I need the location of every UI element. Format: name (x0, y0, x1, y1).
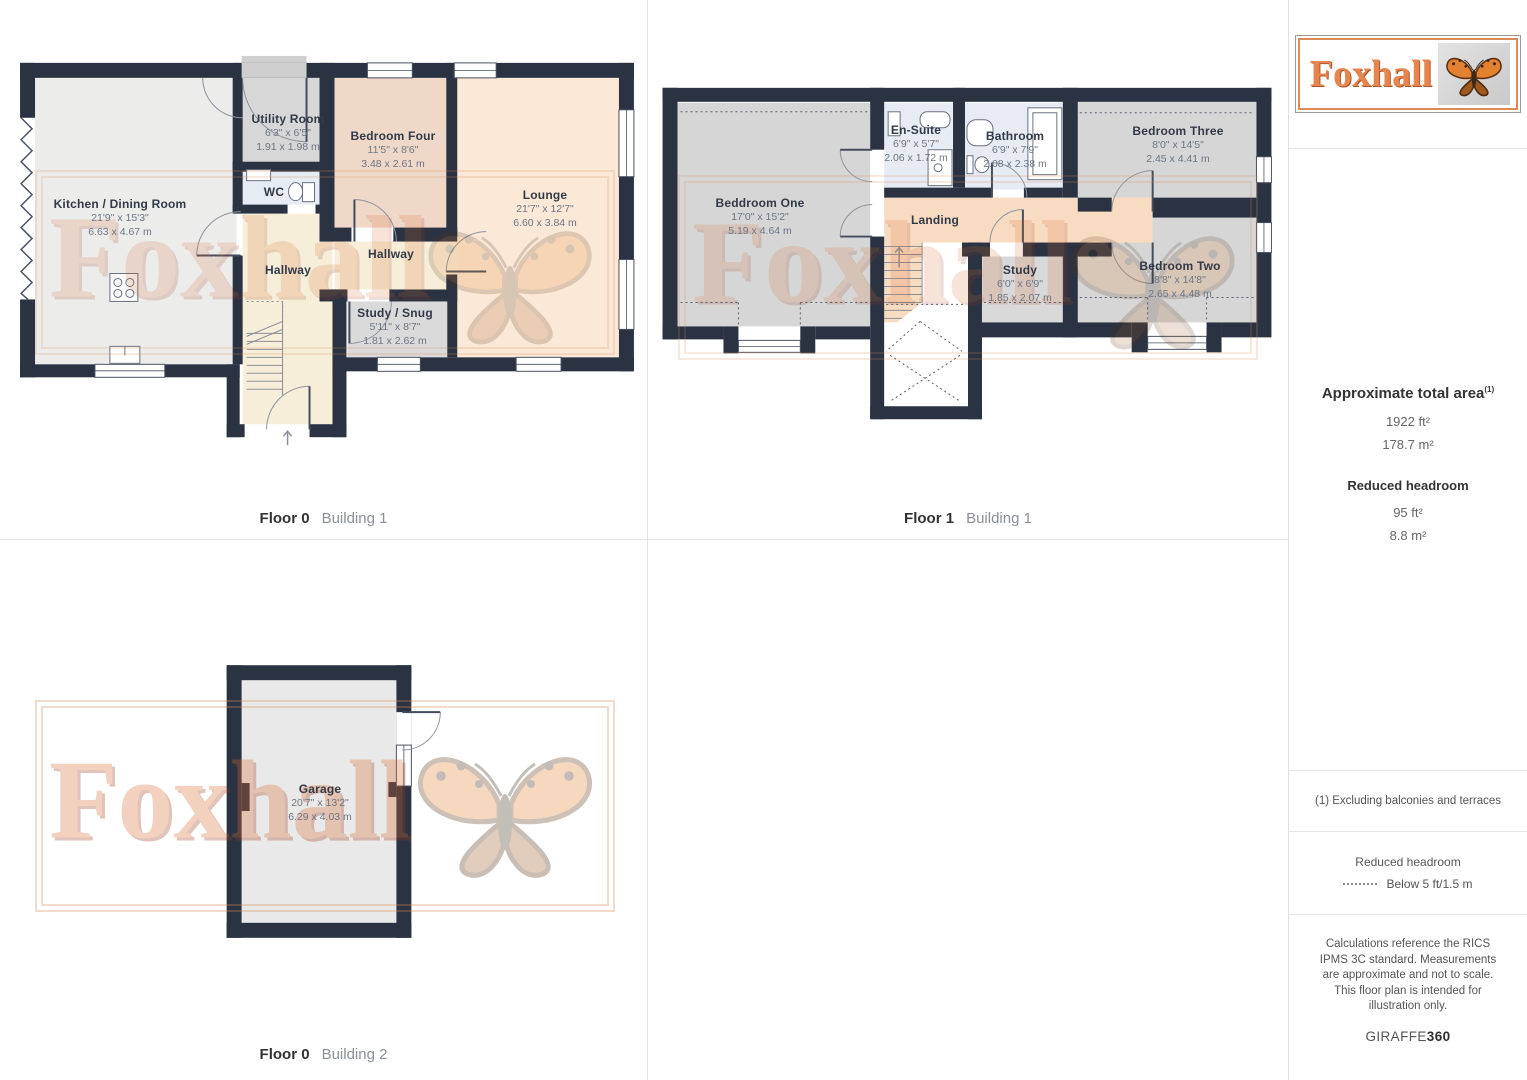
logo-text: Foxhall (1310, 52, 1432, 96)
floorplan-page: Foxhall Kitchen / Dining Room 21'9" x 15… (0, 0, 1527, 1080)
giraffe360-brand: GIRAFFE360 (1365, 1029, 1450, 1044)
reduced-headroom-m: 8.8 m² (1289, 528, 1527, 543)
disclaimer-text: Calculations reference the RICS IPMS 3C … (1314, 937, 1502, 1015)
plan-caption-f0b1: Floor 0 Building 1 (0, 510, 647, 527)
footnote-section: (1) Excluding balconies and terraces (1289, 771, 1527, 832)
legend-section: Reduced headroom Below 5 ft/1.5 m (1289, 832, 1527, 915)
butterfly-icon (1442, 48, 1506, 100)
legend-value: Below 5 ft/1.5 m (1386, 877, 1472, 891)
room-label-hallway-1: Hallway (228, 263, 348, 277)
plan-panel-floor0-building2: Foxhall Garage 20'7" x 13'2" 6.29 x 4.03… (0, 540, 648, 1080)
room-label-wc: WC (234, 185, 314, 199)
foxhall-logo: Foxhall (1295, 35, 1521, 113)
total-area-label: Approximate total area(1) (1289, 385, 1527, 402)
logo-section: Foxhall (1289, 0, 1527, 149)
plan-panel-floor1-building1: Foxhall Beddroom One 17'0" x 15'2" 5.19 … (648, 0, 1288, 540)
plan-caption-f0b2: Floor 0 Building 2 (0, 1046, 647, 1063)
room-label-study-snug: Study / Snug 5'11" x 8'7" 1.81 x 2.62 m (315, 306, 475, 347)
room-label-bedroom-one: Beddroom One 17'0" x 15'2" 5.19 x 4.64 m (680, 196, 840, 237)
room-label-garage: Garage 20'7" x 13'2" 6.29 x 4.03 m (240, 782, 400, 823)
dashed-line-icon (1343, 883, 1377, 885)
room-label-bathroom: Bathroom 6'9" x 7'9" 2.08 x 2.38 m (935, 129, 1095, 170)
reduced-headroom-label: Reduced headroom (1289, 478, 1527, 493)
area-summary-section: Approximate total area(1) 1922 ft² 178.7… (1289, 149, 1527, 771)
total-area-ft: 1922 ft² (1289, 414, 1527, 429)
room-label-study: Study 6'0" x 6'9" 1.85 x 2.07 m (940, 263, 1100, 304)
empty-panel (648, 540, 1288, 1080)
zigzag-wall-symbol (21, 118, 32, 300)
room-label-hallway-2: Hallway (331, 247, 451, 261)
footnote-text: (1) Excluding balconies and terraces (1315, 795, 1501, 807)
room-label-landing: Landing (875, 213, 995, 227)
logo-butterfly-photo (1438, 43, 1510, 105)
plan-panel-floor0-building1: Foxhall Kitchen / Dining Room 21'9" x 15… (0, 0, 648, 540)
disclaimer-section: Calculations reference the RICS IPMS 3C … (1289, 915, 1527, 1079)
total-area-m: 178.7 m² (1289, 437, 1527, 452)
room-label-bedroom-two: Bedroom Two 8'8" x 14'8" 2.65 x 4.48 m (1100, 259, 1260, 300)
plan-caption-f1b1: Floor 1 Building 1 (648, 510, 1288, 527)
room-label-bedroom-four: Bedroom Four 11'5" x 8'6" 3.48 x 2.61 m (313, 129, 473, 170)
entry-arrow-icon (284, 431, 292, 445)
room-label-bedroom-three: Bedroom Three 8'0" x 14'5" 2.45 x 4.41 m (1098, 124, 1258, 165)
info-sidebar: Foxhall Approximate total area(1) 1922 f… (1288, 0, 1527, 1080)
reduced-headroom-ft: 95 ft² (1289, 505, 1527, 520)
room-label-kitchen: Kitchen / Dining Room 21'9" x 15'3" 6.63… (40, 197, 200, 238)
legend-title: Reduced headroom (1355, 855, 1460, 869)
room-label-lounge: Lounge 21'7" x 12'7" 6.60 x 3.84 m (465, 188, 625, 229)
